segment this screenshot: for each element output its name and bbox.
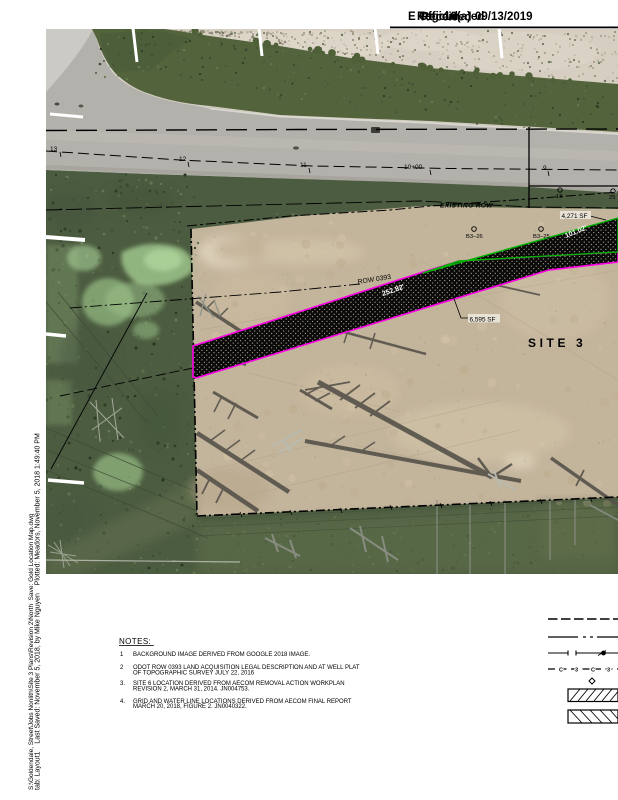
svg-text:NOTES:: NOTES:	[119, 637, 154, 646]
svg-text:B3–25: B3–25	[533, 234, 550, 240]
svg-text:4.: 4.	[120, 699, 125, 705]
svg-text:S:\Goldendale, Street\Jobs Non: S:\Goldendale, Street\Jobs Nonlith\Site …	[28, 513, 35, 790]
svg-text:OF TOPOGRAPHIC SURVEY JULY 22,: OF TOPOGRAPHIC SURVEY JULY 22, 2016	[133, 671, 255, 677]
svg-text:4,271 SF: 4,271 SF	[562, 213, 588, 220]
svg-text:SITE 3: SITE 3	[528, 336, 586, 350]
svg-text:REVISION 2, MARCH 31, 2014. JN: REVISION 2, MARCH 31, 2014. JN004753.	[133, 687, 250, 693]
svg-text:09/13/2019: 09/13/2019	[475, 11, 533, 23]
svg-text:C: C	[559, 668, 563, 674]
svg-text:12: 12	[179, 156, 187, 163]
svg-text:E: E	[408, 11, 416, 23]
svg-text:3: 3	[575, 668, 578, 674]
svg-text:6,595 SF: 6,595 SF	[470, 317, 496, 324]
svg-text:3.: 3.	[120, 681, 125, 687]
svg-text:10+00: 10+00	[404, 164, 423, 171]
svg-text:C: C	[591, 668, 595, 674]
svg-text:13: 13	[50, 146, 58, 153]
svg-text:tab: Layout1 Last Saved: No: tab: Layout1 Last Saved: November 5, 201…	[35, 433, 42, 790]
svg-text:MARCH 20, 2018, FIGURE 2. JN00: MARCH 20, 2018, FIGURE 2. JN0040322.	[133, 704, 247, 710]
svg-text:3: 3	[607, 668, 610, 674]
svg-text:B3–26: B3–26	[466, 234, 483, 240]
svg-text:9: 9	[543, 165, 547, 172]
svg-text:18: 18	[556, 194, 562, 200]
svg-text:11: 11	[300, 162, 307, 169]
svg-text:25: 25	[609, 195, 615, 201]
svg-text:BACKGROUND IMAGE DERIVED FROM: BACKGROUND IMAGE DERIVED FROM GOOGLE 201…	[133, 652, 310, 658]
